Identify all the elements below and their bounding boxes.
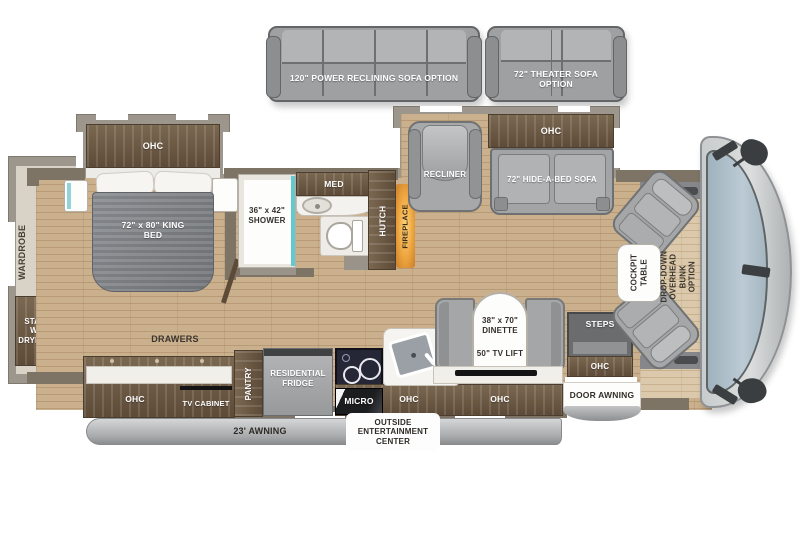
living-window-right (613, 128, 620, 168)
nightstand-right (212, 178, 238, 212)
sofa-armrest-right (467, 36, 482, 98)
kitchen-ohc-mid-label: OHC (386, 390, 432, 408)
bath-sink (302, 197, 332, 214)
hutch-label: HUTCH (368, 186, 396, 256)
kitchen-countertop (86, 366, 232, 384)
power-sofa-label: 120" POWER RECLINING SOFA OPTION (284, 62, 464, 94)
wall-rear (27, 168, 39, 186)
rv-floor-plan: 120" POWER RECLINING SOFA OPTION 72" THE… (0, 0, 800, 545)
shower-label: 36" x 42" SHOWER (242, 196, 292, 236)
wardrobe-label: WARDROBE (12, 200, 34, 304)
lift-tv (455, 370, 537, 376)
fridge-label: RESIDENTIAL FRIDGE (265, 362, 331, 396)
wall-bottom-cab (635, 398, 689, 410)
living-ohc-label: OHC (488, 114, 614, 148)
dinette-bench-right (525, 298, 565, 372)
pantry-label: PANTRY (234, 352, 263, 415)
theater-sofa-label: 72" THEATER SOFA OPTION (501, 62, 611, 96)
entry-ohc-label: OHC (567, 356, 633, 377)
toilet-bowl (326, 222, 353, 250)
drawers-label: DRAWERS (128, 333, 222, 345)
main-awning (86, 418, 562, 445)
entertainment-label: OUTSIDE ENTERTAINMENT CENTER (348, 414, 438, 450)
nightstand-left (64, 180, 88, 212)
wall-bottom-left-corner (27, 372, 87, 384)
kitchen-ohc-left-label: OHC (98, 390, 172, 408)
recliner (408, 121, 482, 212)
dinette-label: 38" x 70" DINETTE (476, 312, 524, 340)
dinette-bench-left (435, 298, 475, 372)
tv-cabinet-tv (180, 386, 232, 390)
kitchen-ohc-right-label: OHC (468, 390, 532, 408)
sofa-armrest-left (266, 36, 281, 98)
bedroom-ohc-label: OHC (86, 124, 220, 168)
recliner-label: RECLINER (408, 168, 482, 182)
living-window-left (393, 128, 400, 168)
cooktop (335, 348, 383, 388)
sofa-armrest-left (485, 36, 499, 98)
sofa-armrest-right (613, 36, 627, 98)
toilet-tank (352, 220, 363, 252)
med-label: MED (296, 172, 372, 196)
door-awning-arc (563, 406, 641, 421)
king-bed-label: 72" x 80" KING BED (118, 215, 188, 245)
micro-label: MICRO (335, 390, 383, 412)
hide-a-bed-sofa-label: 72" HIDE-A-BED SOFA (494, 172, 610, 188)
tv-cabinet-label: TV CABINET (178, 392, 234, 414)
tv-lift-label: 50" TV LIFT (472, 348, 528, 360)
awning-label: 23' AWNING (200, 424, 320, 438)
power-reclining-sofa-option: 120" POWER RECLINING SOFA OPTION (268, 26, 480, 102)
theater-sofa-option: 72" THEATER SOFA OPTION (487, 26, 625, 102)
sofa-back-cushions (501, 30, 611, 62)
door-awning-label: DOOR AWNING (563, 383, 641, 407)
bunk-option-label: DROP-DOWN OVERHEAD BUNK OPTION (652, 222, 704, 332)
